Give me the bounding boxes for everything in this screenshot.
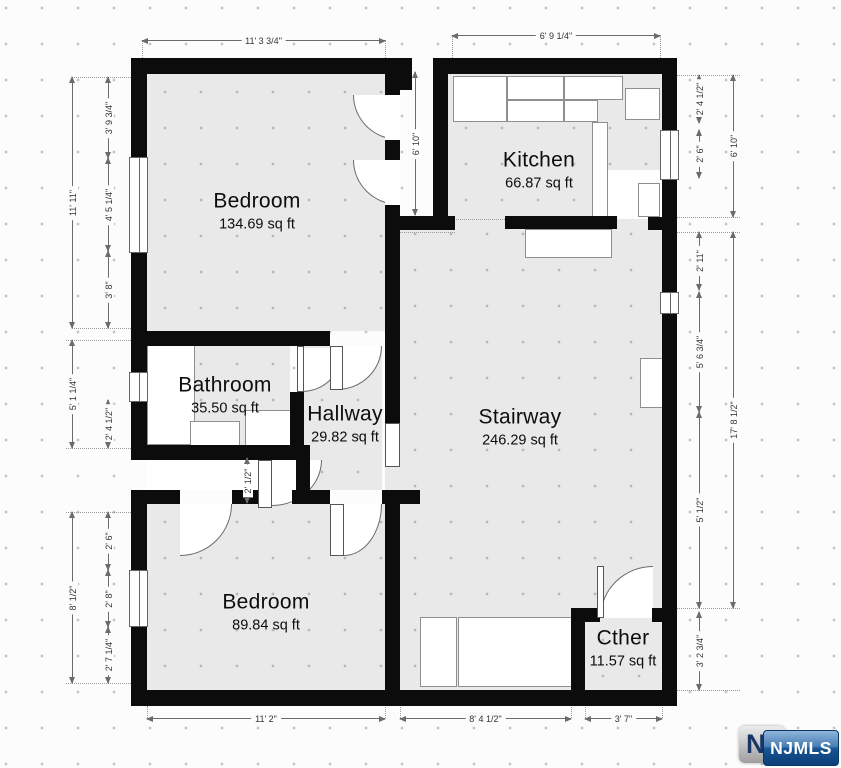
dimension-bottom-bedroom: 11' 2" [147,718,385,719]
wall [652,608,662,622]
dimension-label: 5' 1/2" [695,494,705,527]
dimension-label: 2' 6" [695,141,705,166]
wall [385,504,400,690]
room-area: 66.87 sq ft [503,176,575,192]
wall [382,490,420,504]
wall [400,58,412,90]
dimension-left-seg-g: 2' 7 1/4" [108,627,109,683]
kitchen-counter [507,100,564,122]
extension-line [66,340,131,341]
room-name: Bedroom [222,591,309,615]
dimension-label: 2' 8" [104,586,114,611]
dimension-left-total-1: 11' 11" [72,77,73,328]
extension-line [677,690,740,691]
room-floor-hallway-passage [385,467,400,490]
dimension-label: 2' 1/2" [243,464,253,497]
stairs [458,617,573,687]
dimension-label: 2' 4 1/2" [695,79,705,119]
door-opening [385,95,400,140]
dimension-right-kitchen: 6' 10" [733,75,734,217]
dimension-label: 2' 7 1/4" [104,635,114,675]
dimension-left-seg-b: 4' 5 1/4" [108,158,109,251]
dimension-left-total-3: 8' 1/2" [72,512,73,683]
dimension-label: 5' 6 3/4" [695,332,705,372]
dimension-label: 11' 2" [251,714,281,724]
dimension-left-seg-d: 2' 4 1/2" [108,400,109,448]
window-symbol [660,130,679,180]
door-leaf [297,346,304,392]
dimension-right-total: 17' 8 1/2" [733,232,734,608]
extension-line [72,77,131,78]
dimension-right-seg-b: 2' 6" [699,130,700,178]
window-symbol [660,292,679,314]
dimension-vestibule: 6' 10" [415,72,416,215]
room-area: 11.57 sq ft [590,654,657,670]
dimension-right-seg-d: 5' 6 3/4" [699,292,700,412]
door-leaf [385,423,400,467]
dimension-closet: 2' 1/2" [247,458,248,503]
room-name: Bathroom [178,374,271,398]
room-name: Hallway [307,403,383,427]
room-area: 89.84 sq ft [222,618,309,634]
kitchen-counter [564,100,598,122]
dimension-label: 5' 1 1/4" [68,374,78,414]
dimension-left-seg-e: 2' 6" [108,512,109,570]
room-label-stairway: Stairway 246.29 sq ft [479,406,562,449]
room-area: 29.82 sq ft [307,430,383,446]
dimension-right-seg-c: 2' 11" [699,232,700,290]
window-symbol [129,372,148,402]
wall [131,690,677,706]
dimension-label: 8' 4 1/2" [465,714,505,724]
njmls-logo: NJMLS [763,730,839,766]
wall [396,216,455,230]
wall [385,331,400,423]
dimension-bottom-stairway: 8' 4 1/2" [400,718,571,719]
dimension-label: 2' 11" [695,246,705,276]
door-leaf [258,460,272,508]
njmls-watermark: N NJMLS [739,721,839,765]
stairs [420,617,457,687]
extension-line [66,683,131,684]
dimension-label: 3' 7" [611,714,636,724]
wall [505,216,617,229]
kitchen-cabinet [453,76,507,122]
room-name: Bedroom [213,190,300,214]
dimension-label: 2' 4 1/2" [104,404,114,444]
dimension-left-seg-a: 3' 9 3/4" [108,77,109,158]
kitchen-counter-column [592,122,608,218]
dimension-label: 6' 10" [729,131,739,161]
kitchen-counter [564,76,623,100]
dimension-label: 3' 9 3/4" [104,97,114,137]
room-area: 246.29 sq ft [479,433,562,449]
wall [571,608,585,690]
wall [131,490,180,504]
dimension-label: 4' 5 1/4" [104,184,114,224]
dimension-left-total-2: 5' 1 1/4" [72,340,73,448]
window-symbol [129,570,148,627]
floor-plan: Bedroom 134.69 sq ft Kitchen 66.87 sq ft… [0,0,841,768]
kitchen-appliance [638,183,660,217]
wall [433,58,677,74]
room-label-hallway: Hallway 29.82 sq ft [307,403,383,446]
dimension-top-kitchen: 6' 9 1/4" [452,35,660,36]
wall [292,490,330,504]
sink-vanity [190,421,240,447]
dimension-top-bedroom: 11' 3 3/4" [142,40,385,41]
dimension-left-seg-f: 2' 8" [108,570,109,627]
dimension-label: 6' 9 1/4" [536,31,576,41]
room-label-bathroom: Bathroom 35.50 sq ft [178,374,271,417]
room-label-kitchen: Kitchen 66.87 sq ft [503,149,575,192]
wall [648,217,662,230]
wall [131,331,330,346]
room-name: Stairway [479,406,562,430]
wall [131,445,310,460]
dimension-label: 17' 8 1/2" [729,397,739,442]
door-opening [385,160,400,205]
room-label-other: Cther 11.57 sq ft [590,627,657,670]
fridge [625,88,660,120]
window-symbol [129,157,148,253]
room-area: 35.50 sq ft [178,401,271,417]
dimension-left-seg-c: 3' 8" [108,251,109,328]
counter-below-kitchen [525,229,612,258]
door-leaf [330,346,343,390]
dimension-label: 6' 10" [411,128,421,158]
dimension-right-seg-a: 2' 4 1/2" [699,75,700,123]
dimension-right-seg-f: 3' 2 3/4" [699,612,700,690]
dimension-label: 11' 11" [68,185,78,219]
kitchen-counter [507,76,564,100]
dimension-label: 3' 8" [104,277,114,302]
dimension-label: 2' 6" [104,528,114,553]
opening-marker [448,219,505,220]
room-area: 134.69 sq ft [213,217,300,233]
wall [131,58,412,74]
opening-marker [397,232,455,233]
entry-door-leaf [597,566,604,618]
door-leaf [330,504,344,556]
dimension-label: 11' 3 3/4" [241,36,286,46]
room-label-bedroom-2: Bedroom 89.84 sq ft [222,591,309,634]
dimension-right-seg-e: 5' 1/2" [699,412,700,608]
room-name: Kitchen [503,149,575,173]
extension-line [66,512,131,513]
dimension-label: 3' 2 3/4" [695,631,705,671]
dimension-label: 8' 1/2" [68,581,78,614]
wall [433,74,448,228]
extension-line [72,328,131,329]
room-label-bedroom-1: Bedroom 134.69 sq ft [213,190,300,233]
room-name: Cther [590,627,657,651]
dimension-bottom-other: 3' 7" [585,718,662,719]
